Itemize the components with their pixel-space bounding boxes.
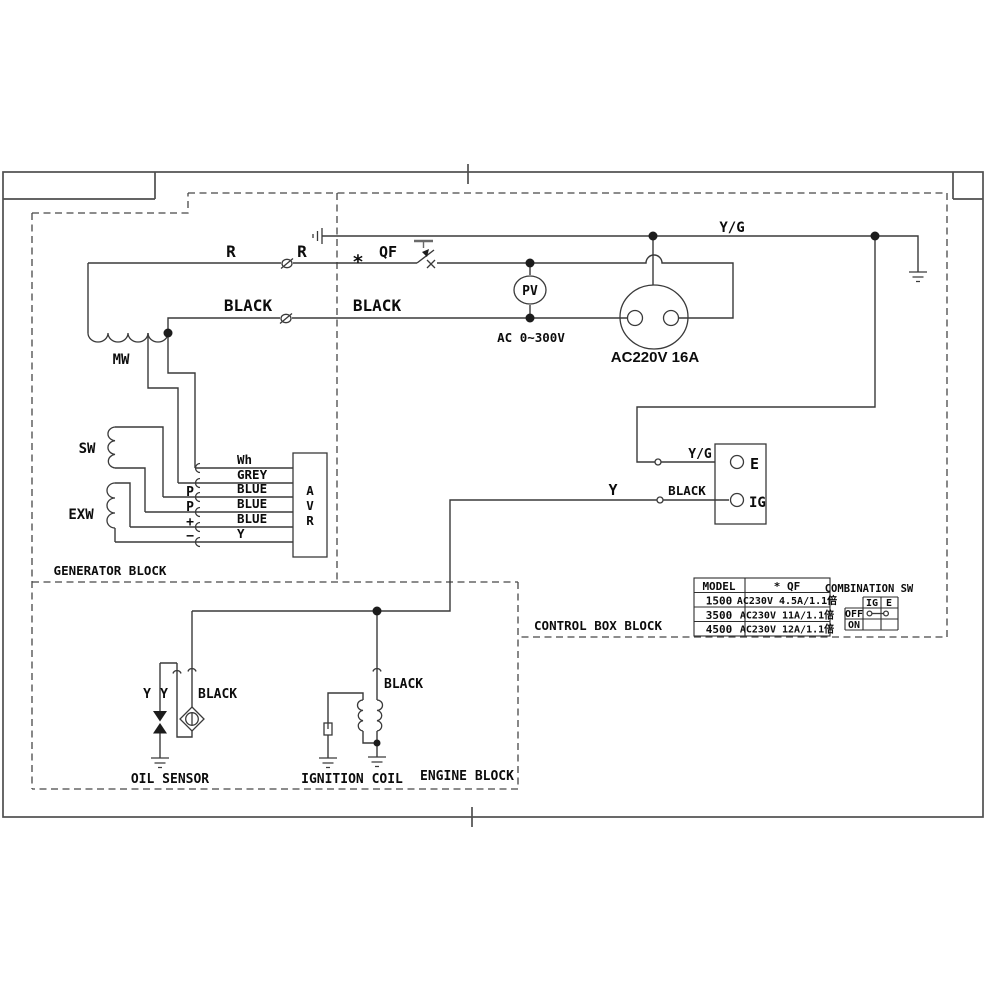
breaker-qf xyxy=(414,241,435,268)
black-ig-label: BLACK xyxy=(668,483,706,498)
terminal-e-label: E xyxy=(750,455,759,473)
oil-black-label: BLACK xyxy=(198,687,237,702)
engine-block-boundary xyxy=(32,582,518,789)
off-contact-icon xyxy=(867,611,888,616)
avr-wire-label-grey: GREY xyxy=(237,467,268,482)
comb-row-off: OFF xyxy=(845,609,863,620)
mw-winding xyxy=(88,263,168,342)
comb-col-e: E xyxy=(886,598,892,609)
yg-top-label: Y/G xyxy=(719,220,744,236)
r-wire-label-2: R xyxy=(297,242,307,261)
chassis-ground-icon xyxy=(313,228,322,244)
avr-pin-p2: P xyxy=(186,500,194,515)
coil-black-label: BLACK xyxy=(384,677,423,692)
engine-block-label: ENGINE BLOCK xyxy=(420,769,514,784)
wiring-diagram: R R * QF BLACK BLACK MW Y/G SW EXW A V R… xyxy=(0,0,987,987)
model-3500: 3500 xyxy=(706,609,733,622)
yg-e-label: Y/G xyxy=(688,447,712,462)
avr-pin-minus: − xyxy=(186,529,194,544)
generator-block-boundary xyxy=(32,193,518,789)
ignition-coil-label: IGNITION COIL xyxy=(301,772,403,787)
y-ig-label: Y xyxy=(608,481,617,499)
control-box-block-label: CONTROL BOX BLOCK xyxy=(534,618,662,633)
socket-rating-label: AC220V 16A xyxy=(611,349,700,366)
qf-star-label: * xyxy=(352,251,363,273)
model-3500-qf: AC230V 11A/1.1倍 xyxy=(740,609,834,622)
pv-label: PV xyxy=(522,284,538,299)
avr-wire-label-wh: Wh xyxy=(237,452,252,467)
avr-wire-label-blue2: BLUE xyxy=(237,496,267,511)
model-table-header-qf: * QF xyxy=(774,580,801,593)
black-wire-label-2: BLACK xyxy=(353,296,402,315)
avr-pin-p1: P xyxy=(186,485,194,500)
exw-winding xyxy=(107,483,130,542)
avr-wire-label-blue3: BLUE xyxy=(237,511,267,526)
model-4500-qf: AC230V 12A/1.1倍 xyxy=(740,623,834,636)
ground-icon xyxy=(151,758,169,768)
combination-sw-title: COMBINATION SW xyxy=(825,583,914,595)
comb-row-on: ON xyxy=(848,620,860,631)
avr-wire-label-blue1: BLUE xyxy=(237,481,267,496)
terminal-ig-label: IG xyxy=(749,495,766,511)
ground-icon xyxy=(319,757,386,768)
avr-letter-v: V xyxy=(306,498,314,513)
combination-sw-table: COMBINATION SW IG E OFF ON xyxy=(825,583,914,631)
pv-range-label: AC 0~300V xyxy=(497,330,565,345)
ac-socket xyxy=(620,236,688,349)
ground-icon xyxy=(909,272,927,282)
model-table-header-model: MODEL xyxy=(702,580,735,593)
exw-label: EXW xyxy=(68,507,94,523)
oil-y1-label: Y xyxy=(143,687,151,702)
avr-letter-r: R xyxy=(306,513,314,528)
oil-y2-label: Y xyxy=(160,687,168,702)
model-4500: 4500 xyxy=(706,623,733,636)
yg-top-wire xyxy=(313,228,927,282)
r-wire xyxy=(88,255,733,318)
generator-block-label: GENERATOR BLOCK xyxy=(54,563,167,578)
avr-pin-plus: + xyxy=(186,515,194,530)
mw-label: MW xyxy=(113,352,130,368)
oil-sensor-label: OIL SENSOR xyxy=(131,772,209,787)
model-table: MODEL * QF 1500 AC230V 4.5A/1.1倍 3500 AC… xyxy=(694,578,837,636)
model-1500: 1500 xyxy=(706,595,733,608)
schematic-page: R R * QF BLACK BLACK MW Y/G SW EXW A V R… xyxy=(0,0,987,987)
r-wire-label: R xyxy=(226,242,236,261)
black-wire-label: BLACK xyxy=(224,296,273,315)
comb-col-ig: IG xyxy=(866,598,878,609)
sw-label: SW xyxy=(79,441,96,457)
sw-winding xyxy=(108,427,163,512)
oil-sensor xyxy=(151,611,204,768)
avr-wire-label-y: Y xyxy=(237,526,245,541)
qf-label: QF xyxy=(379,243,397,261)
avr-letter-a: A xyxy=(306,483,314,498)
ig-wire xyxy=(192,497,729,611)
model-1500-qf: AC230V 4.5A/1.1倍 xyxy=(737,594,837,607)
wire-connector-icon xyxy=(280,259,293,324)
mw-avr-feeds xyxy=(148,333,195,483)
